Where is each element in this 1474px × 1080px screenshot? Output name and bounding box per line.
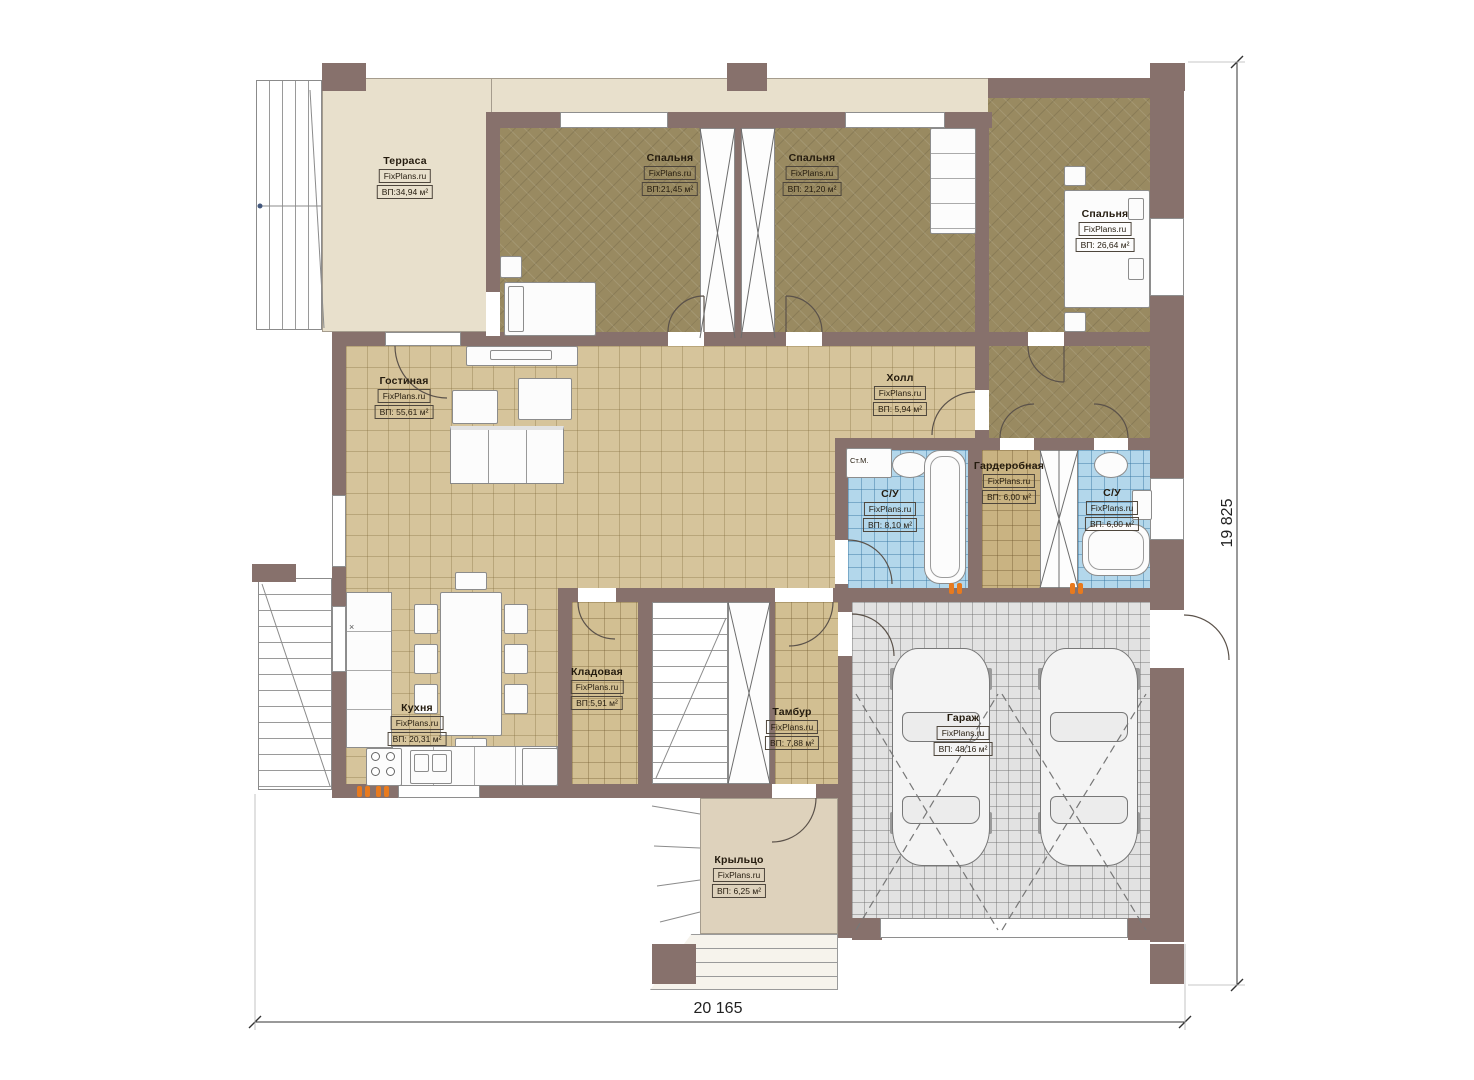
- door-opening: [668, 332, 704, 346]
- wall-segment: [770, 598, 775, 784]
- room-label-bathroom2: С/У FixPlans.ru ВП: 6,00 м²: [1085, 487, 1139, 531]
- dimension-height-label: 19 825: [1219, 499, 1237, 548]
- room-label-vestibule: Тамбур FixPlans.ru ВП: 7,88 м²: [765, 706, 819, 750]
- room-name: Холл: [873, 372, 927, 384]
- left-exterior-stairs: [258, 578, 332, 790]
- room-area: ВП: 8,10 м²: [863, 518, 917, 532]
- bathtub-inner: [1088, 530, 1144, 570]
- room-brand: FixPlans.ru: [391, 716, 444, 730]
- room-brand: FixPlans.ru: [786, 166, 839, 180]
- nightstand: [500, 256, 522, 278]
- sink-bowl: [414, 754, 429, 772]
- garage-side-door-opening: [1150, 610, 1184, 668]
- interior-staircase: [652, 602, 728, 784]
- room-brand: FixPlans.ru: [874, 386, 927, 400]
- room-brand: FixPlans.ru: [1086, 501, 1139, 515]
- room-label-bedroom3: Спальня FixPlans.ru ВП: 26,64 м²: [1076, 208, 1135, 252]
- wall-segment: [252, 564, 296, 582]
- radiator-mark: [357, 786, 362, 797]
- window: [1150, 218, 1184, 296]
- sink: [892, 452, 928, 478]
- door-opening: [786, 332, 822, 346]
- wall-segment: [727, 63, 767, 91]
- footing-block: [1150, 944, 1184, 984]
- floor-plan: Терраса FixPlans.ru ВП:34,94 м² Спальня …: [0, 0, 1474, 1080]
- vent-shaft: [700, 128, 735, 338]
- room-area: ВП: 5,94 м²: [873, 402, 927, 416]
- bedroom3-corridor-floor: [988, 346, 1150, 438]
- pillow: [1128, 258, 1144, 280]
- door-opening: [1000, 438, 1034, 450]
- room-area: ВП: 48,16 м²: [934, 742, 993, 756]
- radiator-mark: [949, 583, 954, 594]
- room-brand: FixPlans.ru: [644, 166, 697, 180]
- room-label-kitchen: Кухня FixPlans.ru ВП: 20,31 м²: [388, 702, 447, 746]
- room-name: С/У: [1085, 487, 1139, 499]
- pillow: [508, 286, 524, 332]
- room-name: Терраса: [377, 155, 433, 167]
- door-opening: [1094, 438, 1128, 450]
- room-label-bedroom1: Спальня FixPlans.ru ВП:21,45 м²: [642, 152, 698, 196]
- room-name: С/У: [863, 488, 917, 500]
- terrace-floor: [322, 78, 492, 332]
- car-rear-window: [1050, 796, 1128, 824]
- car-rear-window: [902, 796, 980, 824]
- door-opening: [578, 588, 616, 602]
- chair: [455, 572, 487, 590]
- built-in-closet: [1040, 450, 1078, 588]
- chair: [414, 604, 438, 634]
- room-area: ВП:34,94 м²: [377, 185, 433, 199]
- sink: [1094, 452, 1128, 478]
- room-label-living: Гостиная FixPlans.ru ВП: 55,61 м²: [375, 375, 434, 419]
- chair: [504, 684, 528, 714]
- terrace-exterior-stairs: [256, 80, 322, 330]
- room-area: ВП: 21,20 м²: [783, 182, 842, 196]
- window: [560, 112, 668, 128]
- room-label-garage: Гараж FixPlans.ru ВП: 48,16 м²: [934, 712, 993, 756]
- shaft-divider-wall: [735, 128, 741, 338]
- room-brand: FixPlans.ru: [379, 169, 432, 183]
- armchair: [452, 390, 498, 424]
- car-windshield: [1050, 712, 1128, 742]
- room-area: ВП: 6,25 м²: [712, 884, 766, 898]
- radiator-mark: [1070, 583, 1075, 594]
- window: [332, 606, 346, 672]
- room-area: ВП: 7,88 м²: [765, 736, 819, 750]
- wall-segment: [1128, 918, 1152, 940]
- nightstand: [1064, 312, 1086, 332]
- counter-mark: ×: [349, 622, 354, 632]
- vent-shaft: [728, 602, 770, 784]
- room-brand: FixPlans.ru: [937, 726, 990, 740]
- room-brand: FixPlans.ru: [378, 389, 431, 403]
- room-area: ВП: 6,00 м²: [982, 490, 1036, 504]
- footing-block: [652, 944, 696, 984]
- vestibule-floor: [775, 602, 838, 784]
- washing-machine-label: Ст.М.: [850, 456, 868, 465]
- wall-segment: [638, 588, 652, 784]
- room-brand: FixPlans.ru: [713, 868, 766, 882]
- room-label-bedroom2: Спальня FixPlans.ru ВП: 21,20 м²: [783, 152, 842, 196]
- room-label-bathroom1: С/У FixPlans.ru ВП: 8,10 м²: [863, 488, 917, 532]
- sofa: [450, 426, 564, 484]
- room-brand: FixPlans.ru: [1079, 222, 1132, 236]
- room-name: Спальня: [642, 152, 698, 164]
- room-area: ВП:21,45 м²: [642, 182, 698, 196]
- door-opening: [1028, 332, 1064, 346]
- wall-segment: [852, 918, 882, 940]
- room-area: ВП: 26,64 м²: [1076, 238, 1135, 252]
- garage-gate: [880, 918, 1128, 938]
- chair: [504, 604, 528, 634]
- door-opening: [975, 390, 989, 430]
- nightstand: [1064, 166, 1086, 186]
- room-brand: FixPlans.ru: [864, 502, 917, 516]
- car: [1040, 648, 1138, 866]
- wall-bedroom3-north: [988, 78, 1152, 98]
- fridge: [522, 748, 558, 786]
- bathtub-inner: [930, 456, 960, 578]
- radiator-mark: [376, 786, 381, 797]
- room-brand: FixPlans.ru: [983, 474, 1036, 488]
- room-area: ВП: 55,61 м²: [375, 405, 434, 419]
- room-area: ВП: 20,31 м²: [388, 732, 447, 746]
- room-name: Тамбур: [765, 706, 819, 718]
- room-name: Кухня: [388, 702, 447, 714]
- stove-burner: [371, 752, 380, 761]
- chair: [414, 644, 438, 674]
- chair: [504, 644, 528, 674]
- room-name: Кладовая: [571, 666, 624, 678]
- room-area: ВП:5,91 м²: [571, 696, 623, 710]
- door-opening: [772, 784, 816, 798]
- stove-burner: [386, 767, 395, 776]
- wall-porch-right: [838, 798, 852, 938]
- room-label-hall: Холл FixPlans.ru ВП: 5,94 м²: [873, 372, 927, 416]
- window: [1150, 478, 1184, 540]
- door-opening: [835, 540, 848, 584]
- room-brand: FixPlans.ru: [766, 720, 819, 734]
- coffee-table: [518, 378, 572, 420]
- room-brand: FixPlans.ru: [571, 680, 624, 694]
- dining-table: [440, 592, 502, 736]
- kitchen-counter: [346, 592, 392, 748]
- room-name: Спальня: [783, 152, 842, 164]
- room-name: Спальня: [1076, 208, 1135, 220]
- built-in-shelf: [930, 128, 976, 234]
- door-opening: [838, 612, 852, 656]
- window: [332, 495, 346, 567]
- door-opening: [775, 588, 833, 602]
- room-name: Гостиная: [375, 375, 434, 387]
- room-label-wardrobe: Гардеробная FixPlans.ru ВП: 6,00 м²: [974, 460, 1044, 504]
- tv: [490, 350, 552, 360]
- sink-bowl: [432, 754, 447, 772]
- vent-shaft: [741, 128, 775, 338]
- room-name: Гардеробная: [974, 460, 1044, 472]
- room-name: Гараж: [934, 712, 993, 724]
- room-label-terrace: Терраса FixPlans.ru ВП:34,94 м²: [377, 155, 433, 199]
- car: [892, 648, 990, 866]
- window: [845, 112, 945, 128]
- stove-burner: [386, 752, 395, 761]
- room-label-porch: Крыльцо FixPlans.ru ВП: 6,25 м²: [712, 854, 766, 898]
- dimension-width-label: 20 165: [694, 1000, 743, 1018]
- window: [398, 784, 480, 798]
- door-opening: [486, 292, 500, 336]
- stove-burner: [371, 767, 380, 776]
- terrace-door-window: [385, 332, 461, 346]
- room-name: Крыльцо: [712, 854, 766, 866]
- room-area: ВП: 6,00 м²: [1085, 517, 1139, 531]
- wall-segment: [322, 63, 366, 91]
- room-label-storage: Кладовая FixPlans.ru ВП:5,91 м²: [571, 666, 624, 710]
